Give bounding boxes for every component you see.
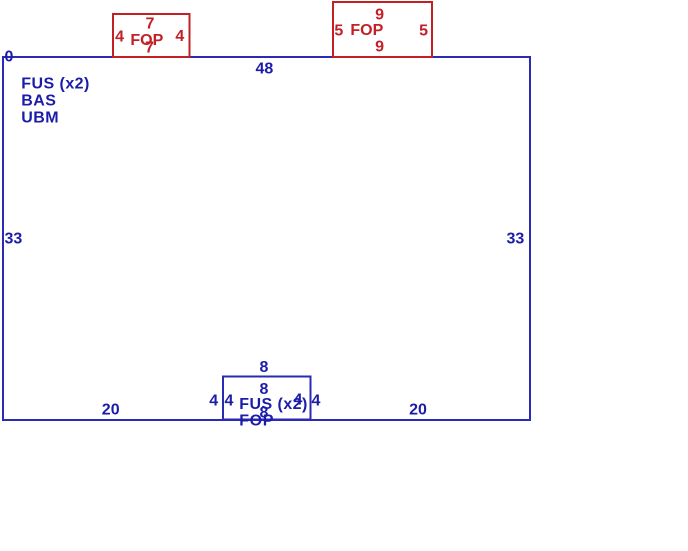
svg-text:4: 4 xyxy=(175,28,184,45)
svg-text:33: 33 xyxy=(507,230,525,247)
svg-text:48: 48 xyxy=(256,60,274,77)
svg-text:20: 20 xyxy=(409,402,427,419)
svg-text:7: 7 xyxy=(145,40,154,57)
svg-text:FUS (x2): FUS (x2) xyxy=(21,75,90,92)
svg-text:33: 33 xyxy=(5,231,23,248)
svg-text:FUS (x2): FUS (x2) xyxy=(239,396,307,413)
svg-text:5: 5 xyxy=(419,22,428,39)
svg-text:4: 4 xyxy=(312,393,321,410)
svg-text:5: 5 xyxy=(334,22,343,39)
svg-text:20: 20 xyxy=(102,402,120,419)
svg-text:FOP: FOP xyxy=(239,413,274,430)
svg-text:UBM: UBM xyxy=(21,110,59,127)
svg-text:4: 4 xyxy=(225,393,234,410)
svg-text:7: 7 xyxy=(145,16,154,33)
svg-text:8: 8 xyxy=(260,359,269,376)
svg-text:4: 4 xyxy=(115,29,124,46)
svg-text:FOP: FOP xyxy=(350,22,383,39)
svg-text:9: 9 xyxy=(375,38,384,55)
svg-text:4: 4 xyxy=(209,393,218,410)
svg-text:BAS: BAS xyxy=(21,93,56,110)
svg-text:0: 0 xyxy=(4,49,13,66)
svg-text:9: 9 xyxy=(375,6,384,23)
